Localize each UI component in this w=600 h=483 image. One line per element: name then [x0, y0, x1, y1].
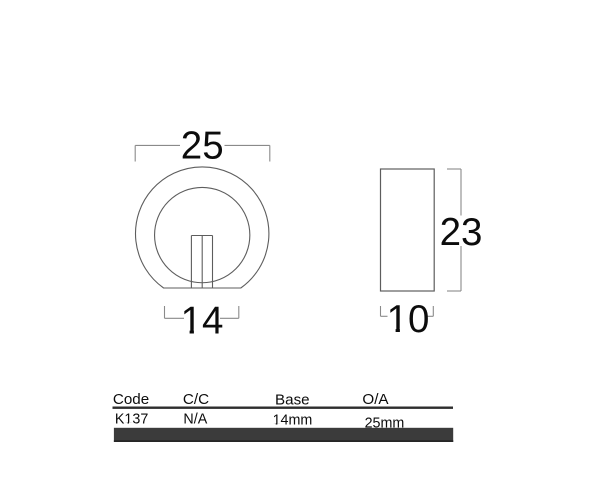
- svg-text:14mm: 14mm: [273, 413, 313, 429]
- svg-text:10: 10: [387, 298, 430, 341]
- svg-text:Code: Code: [113, 391, 149, 408]
- svg-text:Base: Base: [275, 391, 310, 408]
- svg-text:C/C: C/C: [183, 391, 209, 408]
- svg-text:K137: K137: [115, 412, 148, 428]
- svg-text:23: 23: [440, 211, 483, 254]
- svg-text:25: 25: [181, 125, 224, 168]
- svg-text:N/A: N/A: [183, 412, 207, 428]
- svg-text:14: 14: [181, 299, 224, 342]
- svg-text:O/A: O/A: [362, 391, 389, 408]
